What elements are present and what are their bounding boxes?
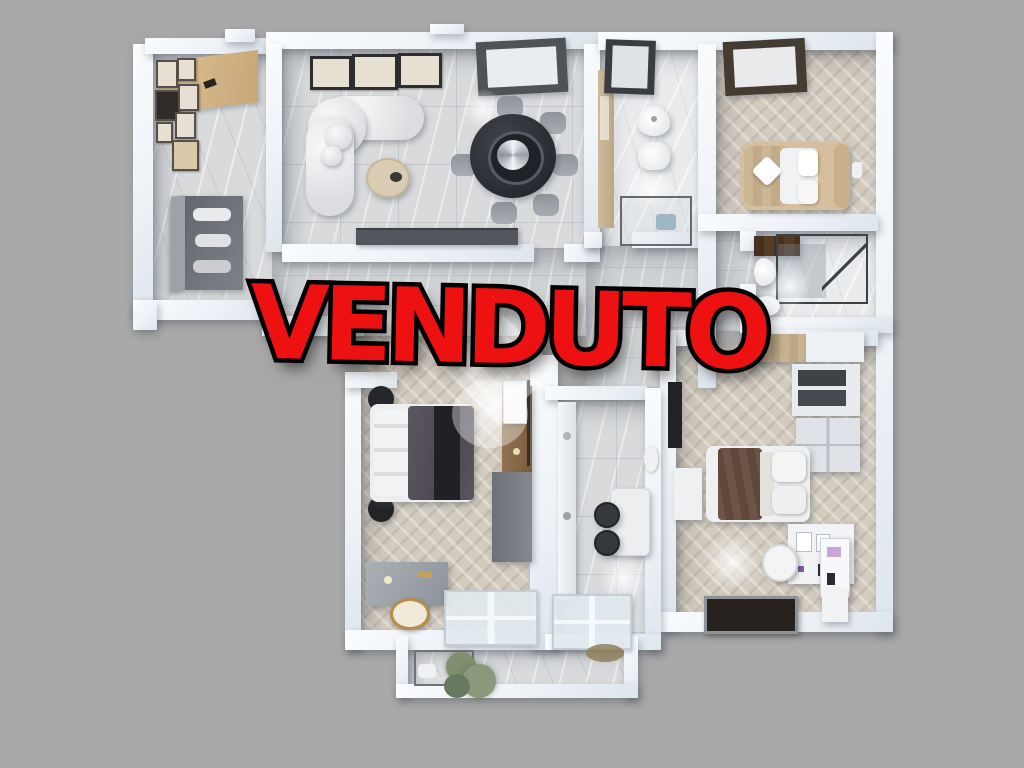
- poster: [827, 547, 841, 557]
- bed3-pillow: [772, 452, 806, 482]
- toilet: [638, 106, 670, 136]
- bed3-blanket: [718, 448, 762, 520]
- dining-table-centerpiece: [497, 140, 529, 170]
- bath1-window: [604, 39, 656, 95]
- toilet-flush: [651, 116, 657, 122]
- wall-balcony-bottom: [396, 684, 638, 698]
- wall-entry-notch: [225, 29, 255, 42]
- bedroom3-shelf-upper: [792, 364, 860, 416]
- wall-living-left: [266, 44, 282, 252]
- bedroom1-sconce: [852, 162, 862, 178]
- watermark-circle-icon: [452, 380, 528, 448]
- entry-picture-frame: [172, 140, 199, 171]
- bedroom3-bed: [706, 446, 810, 522]
- bedroom2-wardrobe: [492, 472, 532, 562]
- dining-table: [470, 114, 556, 198]
- bedroom3-light-glow: [700, 536, 764, 588]
- vanity-stool: [390, 598, 430, 630]
- bedroom1-window-glass: [733, 46, 797, 87]
- bed1-pillow: [798, 150, 818, 176]
- kitchen-stool: [594, 502, 620, 528]
- kitchen-sink: [563, 432, 571, 440]
- balcony-chair: [418, 664, 436, 678]
- wall-entry-left: [133, 44, 153, 322]
- entry-picture-frame: [175, 112, 196, 139]
- console-knob: [513, 448, 520, 455]
- bedroom3-dark-window: [704, 596, 798, 634]
- sold-floorplan-render: VENDUTO: [0, 0, 1024, 768]
- dining-chair: [533, 194, 559, 216]
- bedroom2-balcony-door: [444, 590, 538, 646]
- kitchen-hob: [563, 512, 571, 520]
- wall-bedroom1-bottom: [698, 214, 878, 231]
- bedroom3-tv-panel: [668, 382, 682, 448]
- entry-picture-frame: [177, 58, 196, 81]
- shower-towel: [656, 214, 676, 230]
- living-window-glass: [486, 46, 558, 88]
- kitchen-counter: [558, 402, 576, 600]
- entry-shoe-cabinet: [183, 196, 243, 290]
- bath1-window-glass: [611, 45, 648, 88]
- entry-picture-frame: [156, 122, 173, 143]
- bed1-pillow: [798, 180, 818, 204]
- shelf-slot: [798, 370, 846, 386]
- sofa-ball-cushion: [322, 146, 342, 166]
- bath2-shower-door: [822, 236, 866, 298]
- poster: [827, 573, 835, 585]
- shoe: [195, 234, 231, 247]
- desk-item: [798, 566, 804, 572]
- shoe: [193, 260, 231, 273]
- bedroom3-poster-column: [820, 538, 850, 598]
- tv-sideboard: [356, 228, 518, 245]
- living-picture-frame: [398, 53, 442, 88]
- balcony-round-rug: [586, 644, 624, 662]
- entry-picture-frame: [156, 60, 178, 88]
- entry-cabinet-door: [171, 195, 185, 292]
- wall-living-notch: [430, 24, 464, 34]
- desk-paper: [796, 532, 812, 552]
- bedroom3-cabinet: [822, 590, 848, 622]
- kitchen-wall-clock: [644, 446, 658, 472]
- kitchen-stool: [594, 530, 620, 556]
- bath1-mirror-glint: [600, 96, 609, 140]
- shoe: [193, 208, 231, 221]
- wall-entry-step: [133, 300, 157, 330]
- wall-bedroom2-left: [345, 372, 361, 650]
- bath1-shower: [620, 196, 692, 246]
- wall-bath1-bottom-left: [584, 232, 602, 248]
- wall-living-bottom-left: [282, 244, 534, 262]
- bed3-pillow: [772, 486, 806, 514]
- vanity-item: [384, 576, 392, 584]
- sold-banner-text: VENDUTO: [249, 273, 771, 386]
- living-picture-frame: [310, 56, 352, 90]
- living-window: [476, 38, 569, 97]
- bed2-pillows: [374, 410, 410, 496]
- balcony-plant: [444, 674, 470, 698]
- kitchen-balcony-door: [552, 594, 632, 650]
- bedroom3-dresser: [674, 468, 702, 520]
- vanity-item: [418, 572, 432, 578]
- coffee-table-tray: [390, 172, 402, 182]
- dining-chair: [491, 202, 517, 224]
- bed1-headboard: [834, 144, 850, 208]
- entry-picture-frame: [178, 84, 199, 111]
- coffee-table: [366, 158, 410, 198]
- bedroom3-chair: [762, 544, 798, 582]
- bath1-vanity: [598, 70, 614, 228]
- bedroom1-window: [723, 38, 808, 96]
- shelf-slot: [798, 390, 846, 406]
- bedroom3-white-closet: [806, 332, 864, 362]
- living-picture-frame: [352, 54, 398, 90]
- bedroom1-bed: [742, 142, 850, 210]
